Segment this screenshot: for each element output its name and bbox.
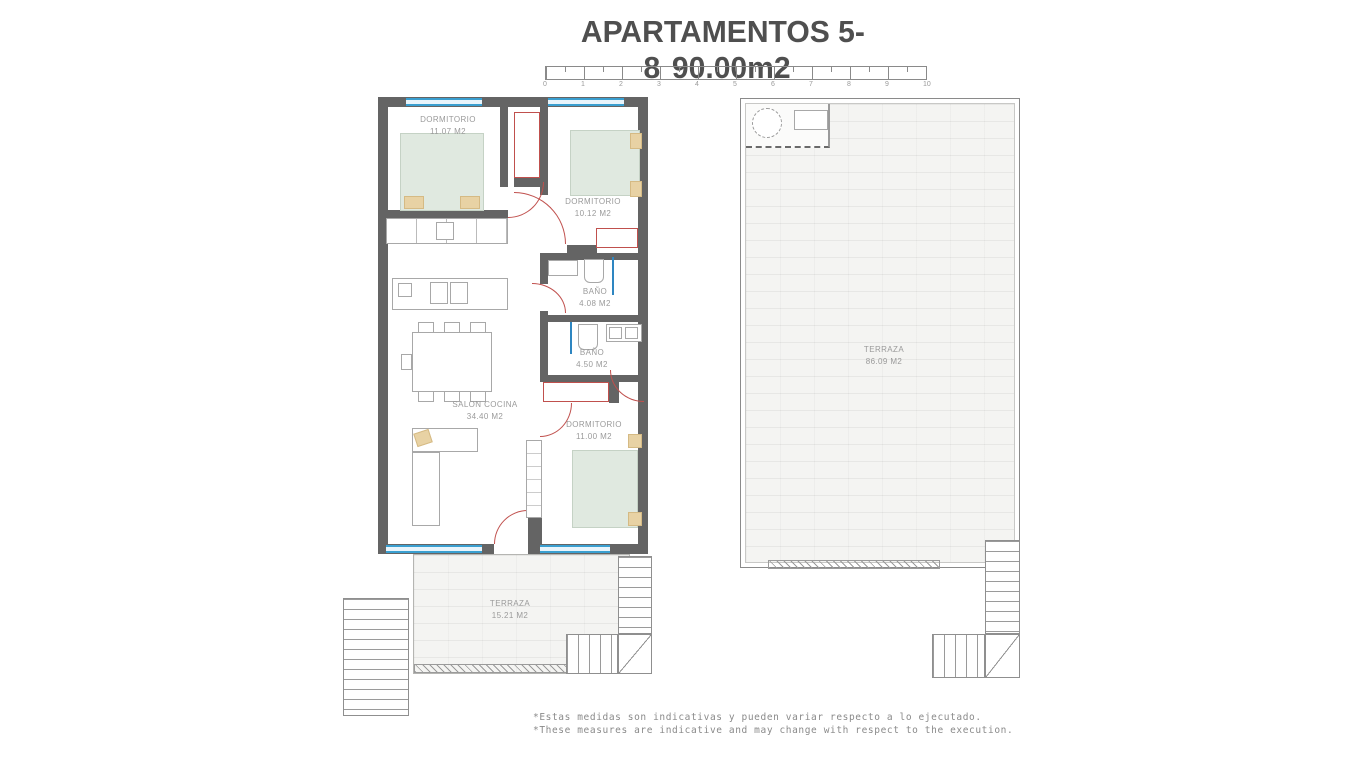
stairs-roof-flight-down [985, 540, 1020, 634]
stairs-exterior-long [343, 598, 409, 716]
sofa-body [412, 452, 440, 526]
scale-tick-number: 2 [619, 81, 623, 88]
label-bano2: BAÑO 4.50 M2 [552, 347, 632, 370]
island-hob [398, 283, 412, 297]
label-terraza-apartment: TERRAZA 15.21 M2 [460, 598, 560, 621]
window-salon [386, 545, 482, 553]
room-area: 11.07 M2 [398, 126, 498, 138]
stairs-terrace-winder [618, 634, 652, 674]
room-name: DORMITORIO [398, 114, 498, 126]
stairs-roof-flight-bottom [932, 634, 985, 678]
footnote-spanish: *Estas medidas son indicativas y pueden … [533, 712, 982, 723]
scale-tick-number: 9 [885, 81, 889, 88]
wall-bath1-left-a [540, 258, 548, 284]
room-name: DORMITORIO [554, 419, 634, 431]
wardrobe-dormitorio2 [596, 228, 638, 248]
roof-terrace-floor [745, 103, 1015, 563]
bath2-sink-bowl2 [625, 327, 638, 339]
room-area: 34.40 M2 [435, 411, 535, 423]
room-name: BAÑO [552, 347, 632, 359]
room-name: TERRAZA [834, 344, 934, 356]
room-area: 4.50 M2 [552, 359, 632, 371]
sink-right [450, 282, 468, 304]
room-name: SALON COCINA [435, 399, 535, 411]
scale-tick-number: 3 [657, 81, 661, 88]
door-terrace [494, 510, 528, 544]
wall-left [378, 97, 388, 554]
nightstand-dormitorio3-bottom [628, 512, 642, 526]
wall-bedroom2-bottom [567, 245, 597, 253]
wall-bath-left-b [540, 311, 548, 377]
bath1-sink [548, 260, 578, 276]
bath1-toilet [584, 259, 604, 283]
scale-numbers: 012345678910 [545, 81, 927, 91]
scale-bar [545, 66, 927, 80]
cooktop [436, 222, 454, 240]
wardrobe-hall [514, 112, 540, 178]
window-dormitorio1 [406, 98, 482, 106]
footnote-english: *These measures are indicative and may c… [533, 725, 1013, 736]
label-dormitorio3: DORMITORIO 11.00 M2 [554, 419, 634, 442]
hall-cabinet [526, 440, 542, 518]
bath2-sink-bowl1 [609, 327, 622, 339]
stairs-roof-winder [985, 634, 1020, 678]
room-name: TERRAZA [460, 598, 560, 610]
room-area: 86.09 M2 [834, 356, 934, 368]
closet-dormitorio3 [543, 382, 609, 402]
chair [418, 391, 434, 402]
label-terraza-roof: TERRAZA 86.09 M2 [834, 344, 934, 367]
stairs-terrace-flight-down [618, 556, 652, 634]
room-area: 4.08 M2 [555, 298, 635, 310]
dining-table [412, 332, 492, 392]
scale-tick-number: 0 [543, 81, 547, 88]
scale-tick-number: 5 [733, 81, 737, 88]
wall-hall-left [500, 107, 508, 187]
pillow-dormitorio1-right [460, 196, 480, 209]
scale-tick-number: 8 [847, 81, 851, 88]
pillow-dormitorio2-bottom [630, 181, 642, 197]
scale-tick-number: 6 [771, 81, 775, 88]
room-name: BAÑO [555, 286, 635, 298]
wall-cabinet-pier [528, 518, 542, 544]
scale-tick-number: 10 [923, 81, 931, 88]
room-area: 10.12 M2 [553, 208, 633, 220]
label-salon: SALON COCINA 34.40 M2 [435, 399, 535, 422]
roof-terrace-edge-hatch [768, 560, 940, 569]
window-dormitorio3 [540, 545, 610, 553]
window-dormitorio2 [548, 98, 624, 106]
scale-tick-number: 7 [809, 81, 813, 88]
sink-left [430, 282, 448, 304]
wall-bedroom1-bottom [378, 210, 508, 218]
chair [401, 354, 412, 370]
room-area: 11.00 M2 [554, 431, 634, 443]
stairs-terrace-flight-bottom [566, 634, 618, 674]
pillow-dormitorio1-left [404, 196, 424, 209]
chair [470, 322, 486, 333]
label-bano1: BAÑO 4.08 M2 [555, 286, 635, 309]
chair [418, 322, 434, 333]
room-area: 15.21 M2 [460, 610, 560, 622]
scale-tick-number: 1 [581, 81, 585, 88]
label-dormitorio2: DORMITORIO 10.12 M2 [553, 196, 633, 219]
scale-tick-number: 4 [695, 81, 699, 88]
skylight-box [794, 110, 828, 130]
terrace-door-opening [494, 544, 528, 554]
floor-plan-sheet: APARTAMENTOS 5-890.00m2 012345678910 [0, 0, 1366, 768]
label-dormitorio1: DORMITORIO 11.07 M2 [398, 114, 498, 137]
chair [444, 322, 460, 333]
room-name: DORMITORIO [553, 196, 633, 208]
skylight-circle [752, 108, 782, 138]
pillow-dormitorio2-top [630, 133, 642, 149]
wall-between-baths [540, 315, 648, 322]
